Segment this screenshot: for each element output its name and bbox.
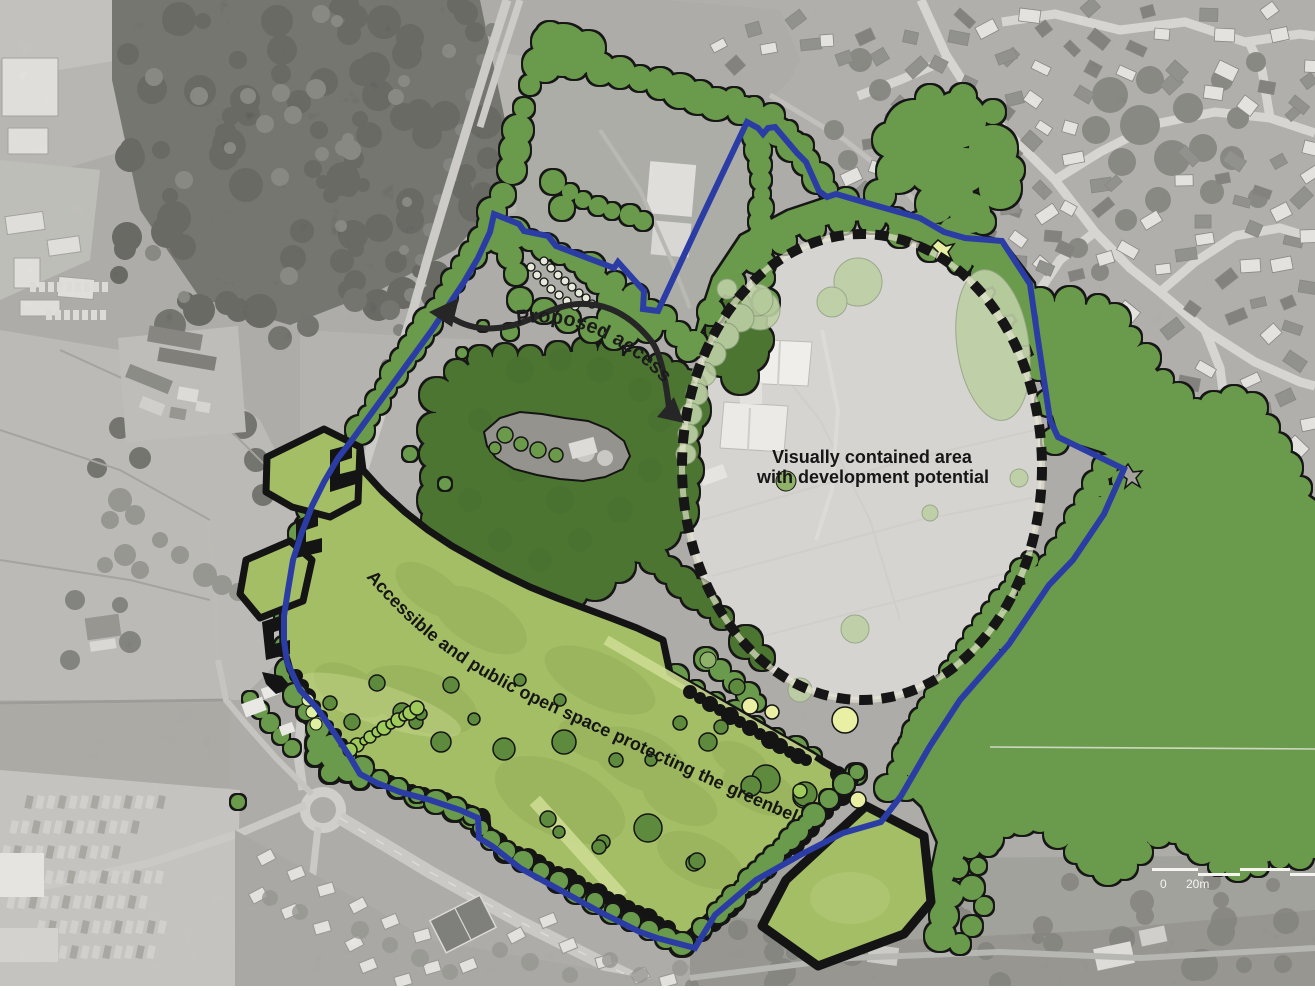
- svg-text:20m: 20m: [1186, 877, 1209, 891]
- svg-text:0: 0: [1160, 877, 1167, 891]
- svg-text:Visually contained area: Visually contained area: [772, 447, 973, 467]
- svg-text:with development potential: with development potential: [756, 467, 989, 487]
